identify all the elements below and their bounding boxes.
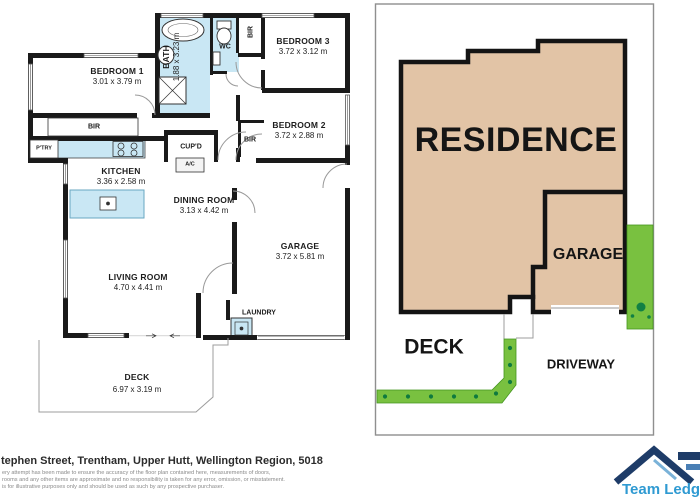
room-dims-bedroom2: 3.72 x 2.88 m: [275, 132, 323, 140]
room-dims-dining: 3.13 x 4.42 m: [180, 207, 228, 215]
site-label-deck: DECK: [404, 337, 464, 358]
room-dims-bath: 1.88 x 3.23 m: [173, 33, 181, 81]
room-label-bedroom1: BEDROOM 1: [90, 67, 143, 76]
logo-text: Team Ledg: [622, 481, 700, 498]
room-label-bath: BATH: [162, 45, 171, 69]
room-label-deck: DECK: [125, 373, 150, 382]
deck-slider-marks: [129, 334, 196, 338]
disclaimer-line-1: ery attempt has been made to ensure the …: [2, 470, 270, 476]
room-dims-kitchen: 3.36 x 2.58 m: [97, 178, 145, 186]
site-label-garage: GARAGE: [553, 247, 623, 263]
room-dims-bedroom3: 3.72 x 3.12 m: [279, 48, 327, 56]
label-pantry: P'TRY: [36, 146, 52, 152]
residence-shape: [401, 41, 625, 315]
garden-strip-right: [627, 225, 653, 329]
logo-house-icon: [616, 450, 700, 482]
room-label-bedroom3: BEDROOM 3: [276, 37, 329, 46]
label-cupboard: CUP'D: [180, 144, 202, 151]
label-bir-bedroom2: BIR: [244, 137, 256, 144]
site-label-driveway: DRIVEWAY: [547, 358, 615, 371]
room-label-bedroom2: BEDROOM 2: [272, 121, 325, 130]
floorplan-page: BEDROOM 1 3.01 x 3.79 m BATH 1.88 x 3.23…: [0, 0, 700, 500]
label-bir-bedroom1: BIR: [88, 124, 100, 131]
room-dims-garage: 3.72 x 5.81 m: [276, 253, 324, 261]
label-ac: A/C: [185, 162, 194, 168]
room-label-garage: GARAGE: [281, 242, 320, 251]
site-label-residence: RESIDENCE: [415, 123, 618, 157]
property-address: tephen Street, Trentham, Upper Hutt, Wel…: [1, 455, 323, 467]
label-laundry: LAUNDRY: [242, 310, 276, 317]
room-dims-living: 4.70 x 4.41 m: [114, 284, 162, 292]
label-bir-top: BIR: [248, 26, 255, 38]
room-dims-deck: 6.97 x 3.19 m: [113, 386, 161, 394]
disclaimer-line-2: rooms and any other items are approximat…: [2, 477, 285, 483]
garage-door-line: [257, 336, 345, 340]
room-label-dining: DINING ROOM: [174, 196, 235, 205]
room-label-kitchen: KITCHEN: [101, 167, 140, 176]
room-label-living: LIVING ROOM: [108, 273, 167, 282]
label-wc: WC: [219, 44, 231, 51]
room-dims-bedroom1: 3.01 x 3.79 m: [93, 78, 141, 86]
disclaimer-line-3: is for illustrative purposes only and sh…: [2, 484, 224, 490]
